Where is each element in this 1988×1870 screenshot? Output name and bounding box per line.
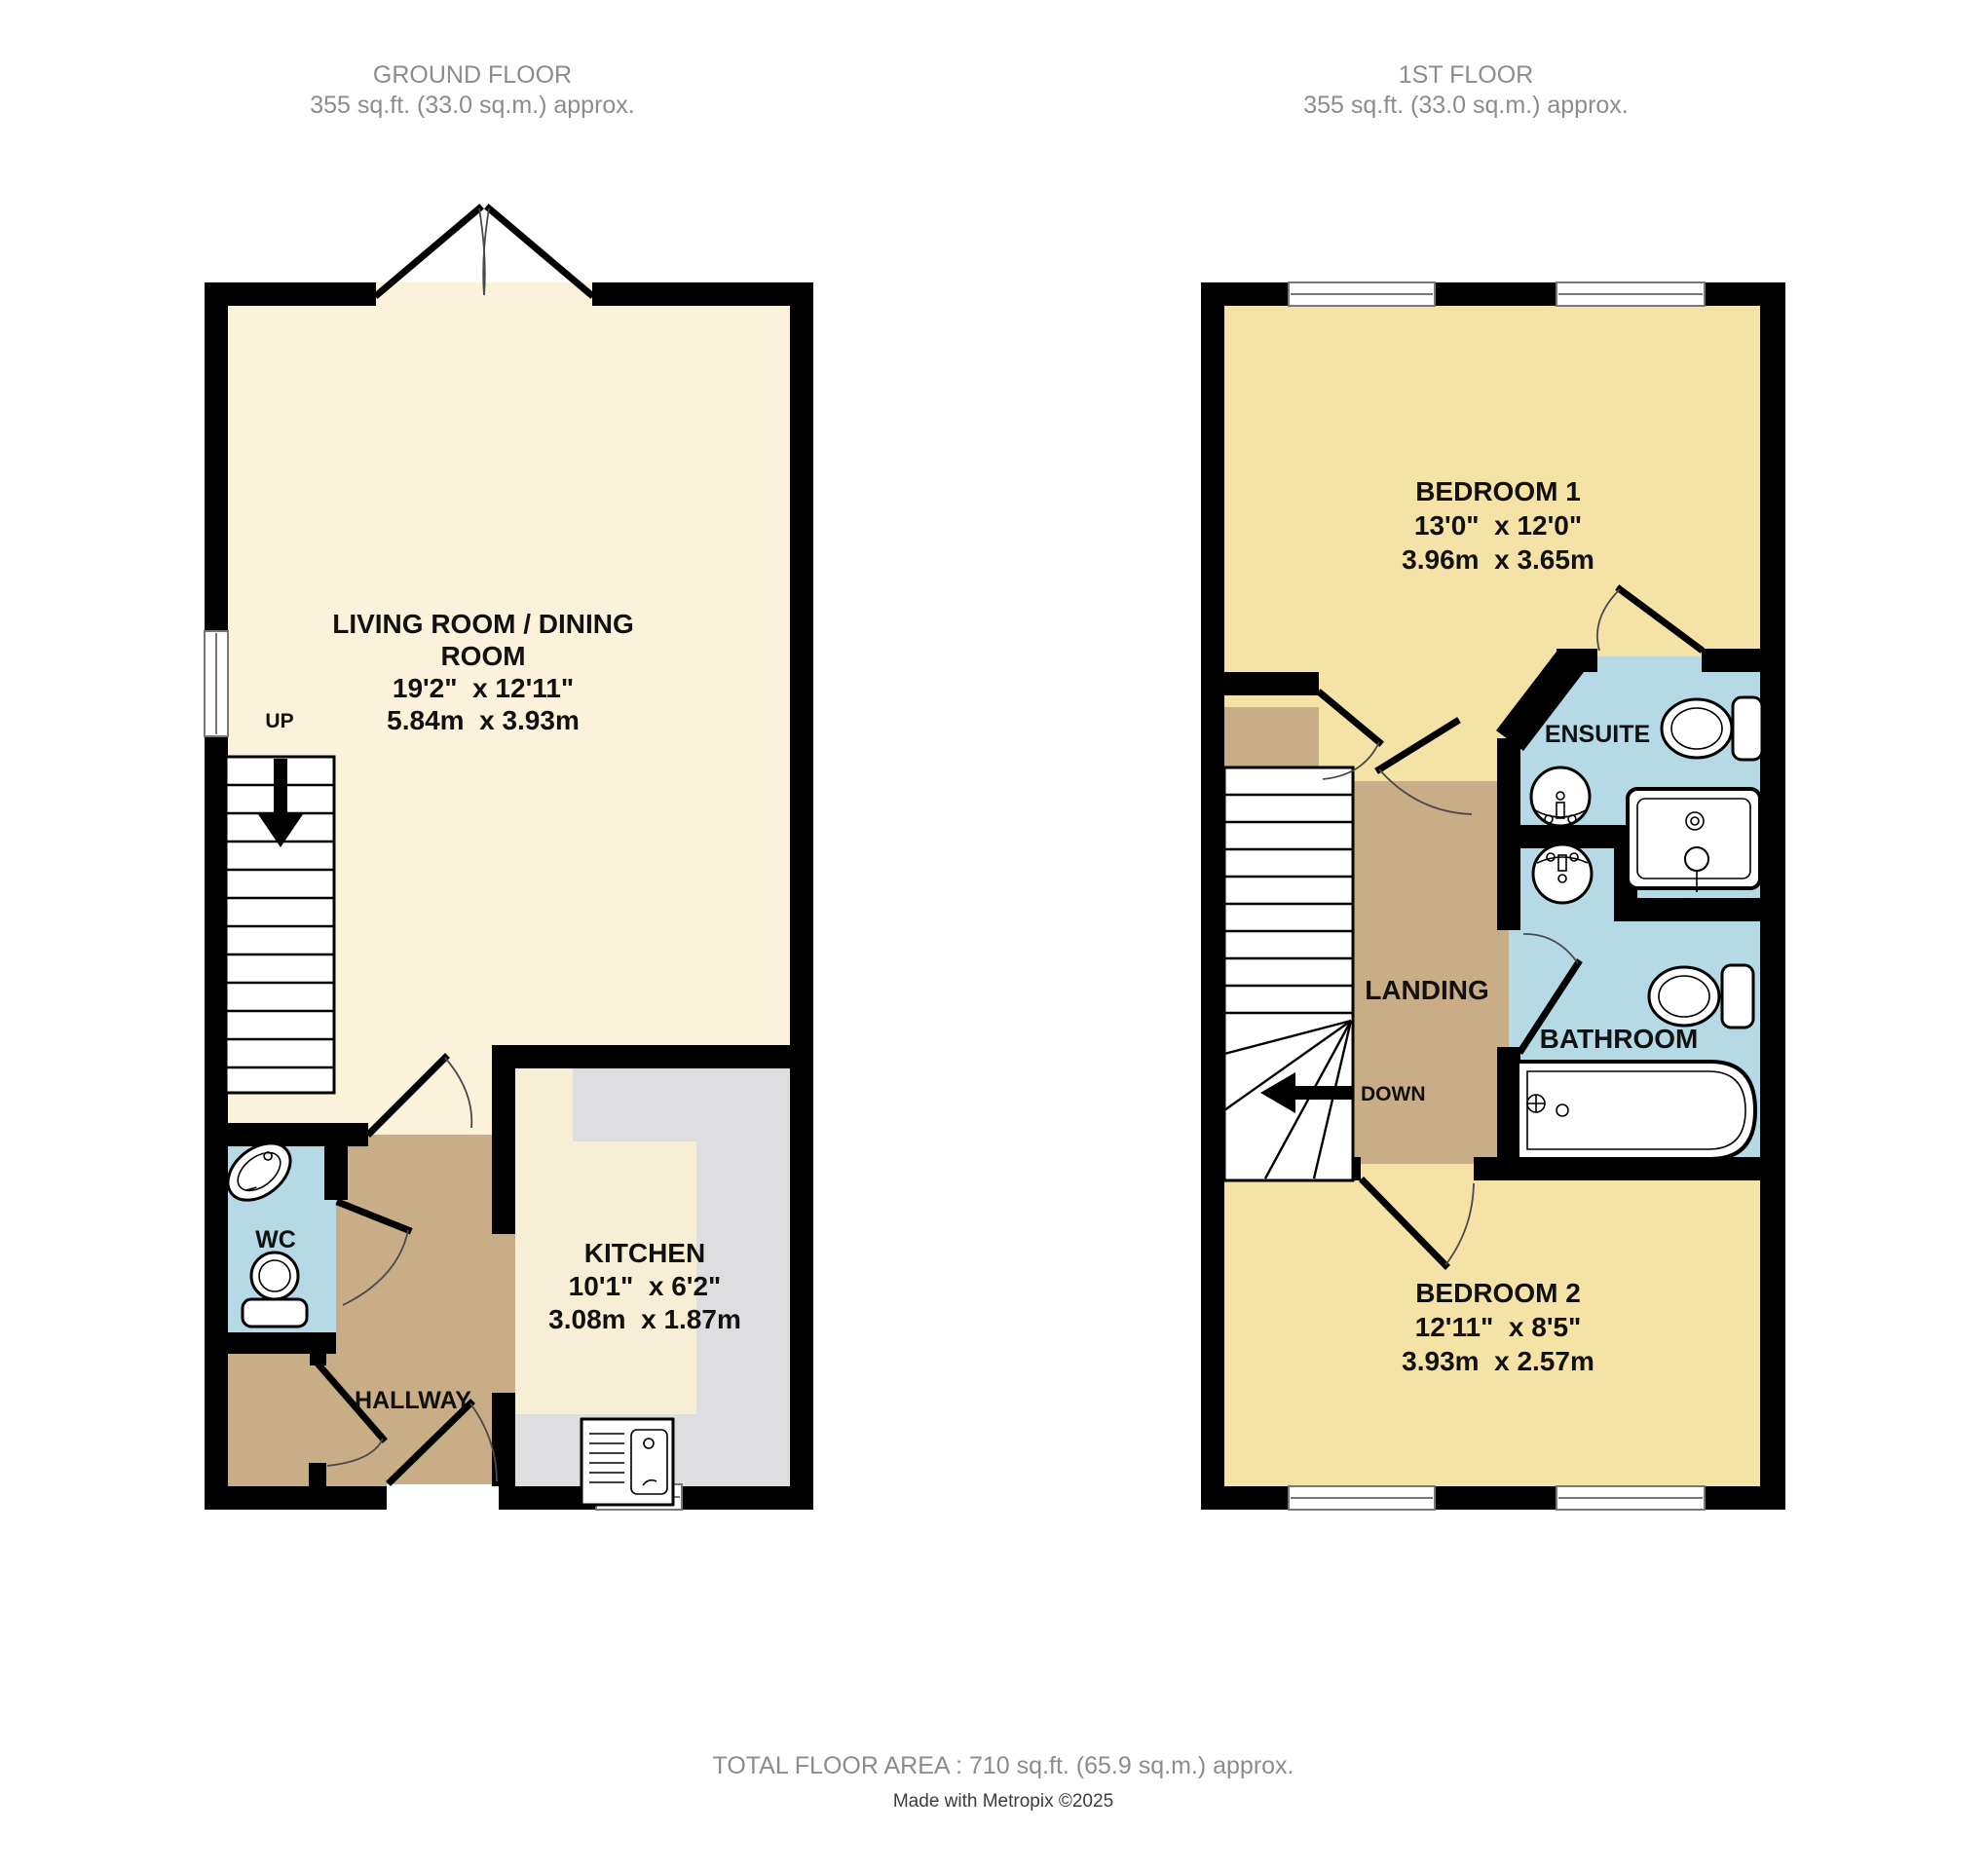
french-doors — [378, 208, 590, 295]
bedroom2-dims-metric: 3.93m x 2.57m — [1402, 1346, 1594, 1376]
bathroom-toilet-icon — [1649, 965, 1753, 1028]
living-room-dims-metric: 5.84m x 3.93m — [387, 705, 580, 735]
bedroom1-landing-wall — [1224, 672, 1319, 695]
bedroom2-dims-imperial: 12'11" x 8'5" — [1415, 1312, 1582, 1342]
ground-floor-area: 355 sq.ft. (33.0 sq.m.) approx. — [310, 92, 635, 119]
living-room-name-line2: ROOM — [440, 641, 525, 671]
first-floor-area: 355 sq.ft. (33.0 sq.m.) approx. — [1303, 92, 1629, 119]
front-door-opening — [387, 1484, 499, 1510]
first-floor-header: 1ST FLOOR 355 sq.ft. (33.0 sq.m.) approx… — [1303, 61, 1629, 119]
ground-floor-title: GROUND FLOOR — [373, 61, 572, 89]
wc-label: WC — [255, 1226, 296, 1253]
floorplan-canvas: GROUND FLOOR 355 sq.ft. (33.0 sq.m.) app… — [0, 0, 1988, 1870]
kitchen-sink-icon — [581, 1419, 673, 1505]
bedroom2-window-right — [1557, 1486, 1705, 1510]
bathtub-icon — [1518, 1062, 1755, 1159]
stairs-down-label: DOWN — [1361, 1083, 1426, 1105]
bedroom2-window-left — [1289, 1486, 1435, 1510]
stairs-up-label: UP — [265, 710, 293, 732]
ensuite-top-wall-left — [1557, 649, 1597, 672]
floorplan-page: GROUND FLOOR 355 sq.ft. (33.0 sq.m.) app… — [0, 0, 1988, 1870]
total-floor-area: TOTAL FLOOR AREA : 710 sq.ft. (65.9 sq.m… — [713, 1752, 1294, 1779]
bedroom2-name: BEDROOM 2 — [1415, 1278, 1581, 1308]
ensuite-bathroom-wall-right — [1614, 898, 1785, 921]
footer: TOTAL FLOOR AREA : 710 sq.ft. (65.9 sq.m… — [713, 1752, 1294, 1812]
living-room-name-line1: LIVING ROOM / DINING — [332, 609, 634, 639]
landing-label: LANDING — [1365, 975, 1489, 1005]
bathroom-label: BATHROOM — [1540, 1024, 1699, 1054]
ensuite-top-wall-right — [1702, 649, 1785, 672]
kitchen-dims-imperial: 10'1" x 6'2" — [569, 1271, 722, 1301]
ensuite-sink-icon — [1531, 767, 1590, 826]
first-floor-plan: 1ST FLOOR 355 sq.ft. (33.0 sq.m.) approx… — [1201, 61, 1785, 1510]
bedroom1-dims-imperial: 13'0" x 12'0" — [1414, 510, 1582, 541]
ground-floor-header: GROUND FLOOR 355 sq.ft. (33.0 sq.m.) app… — [310, 61, 635, 119]
metropix-credit: Made with Metropix ©2025 — [893, 1791, 1113, 1812]
ensuite-label: ENSUITE — [1545, 721, 1650, 748]
hall-door-stub-bottom — [309, 1463, 326, 1486]
bedroom1-dims-metric: 3.96m x 3.65m — [1402, 544, 1594, 575]
kitchen-left-wall-lower — [492, 1393, 515, 1486]
bedroom1-name: BEDROOM 1 — [1415, 476, 1581, 506]
stairs-first-box — [1224, 767, 1353, 1180]
wc-right-wall — [324, 1123, 348, 1200]
kitchen-top-wall — [492, 1045, 813, 1068]
kitchen-name: KITCHEN — [584, 1238, 705, 1268]
hallway-label: HALLWAY — [355, 1387, 471, 1414]
bedroom1-window-left — [1289, 282, 1435, 306]
ground-floor-plan: GROUND FLOOR 355 sq.ft. (33.0 sq.m.) app… — [205, 61, 813, 1510]
kitchen-dims-metric: 3.08m x 1.87m — [548, 1304, 741, 1334]
living-room-dims-imperial: 19'2" x 12'11" — [393, 673, 574, 703]
shower-icon — [1628, 789, 1760, 892]
ensuite-toilet-icon — [1662, 697, 1762, 760]
kitchen-left-wall-upper — [492, 1045, 515, 1234]
left-wall-window — [205, 631, 228, 736]
bedroom1-window-right — [1557, 282, 1705, 306]
stairs-ground: UP — [226, 710, 334, 1093]
bathroom-sink-icon — [1533, 844, 1592, 903]
first-floor-title: 1ST FLOOR — [1399, 61, 1533, 89]
